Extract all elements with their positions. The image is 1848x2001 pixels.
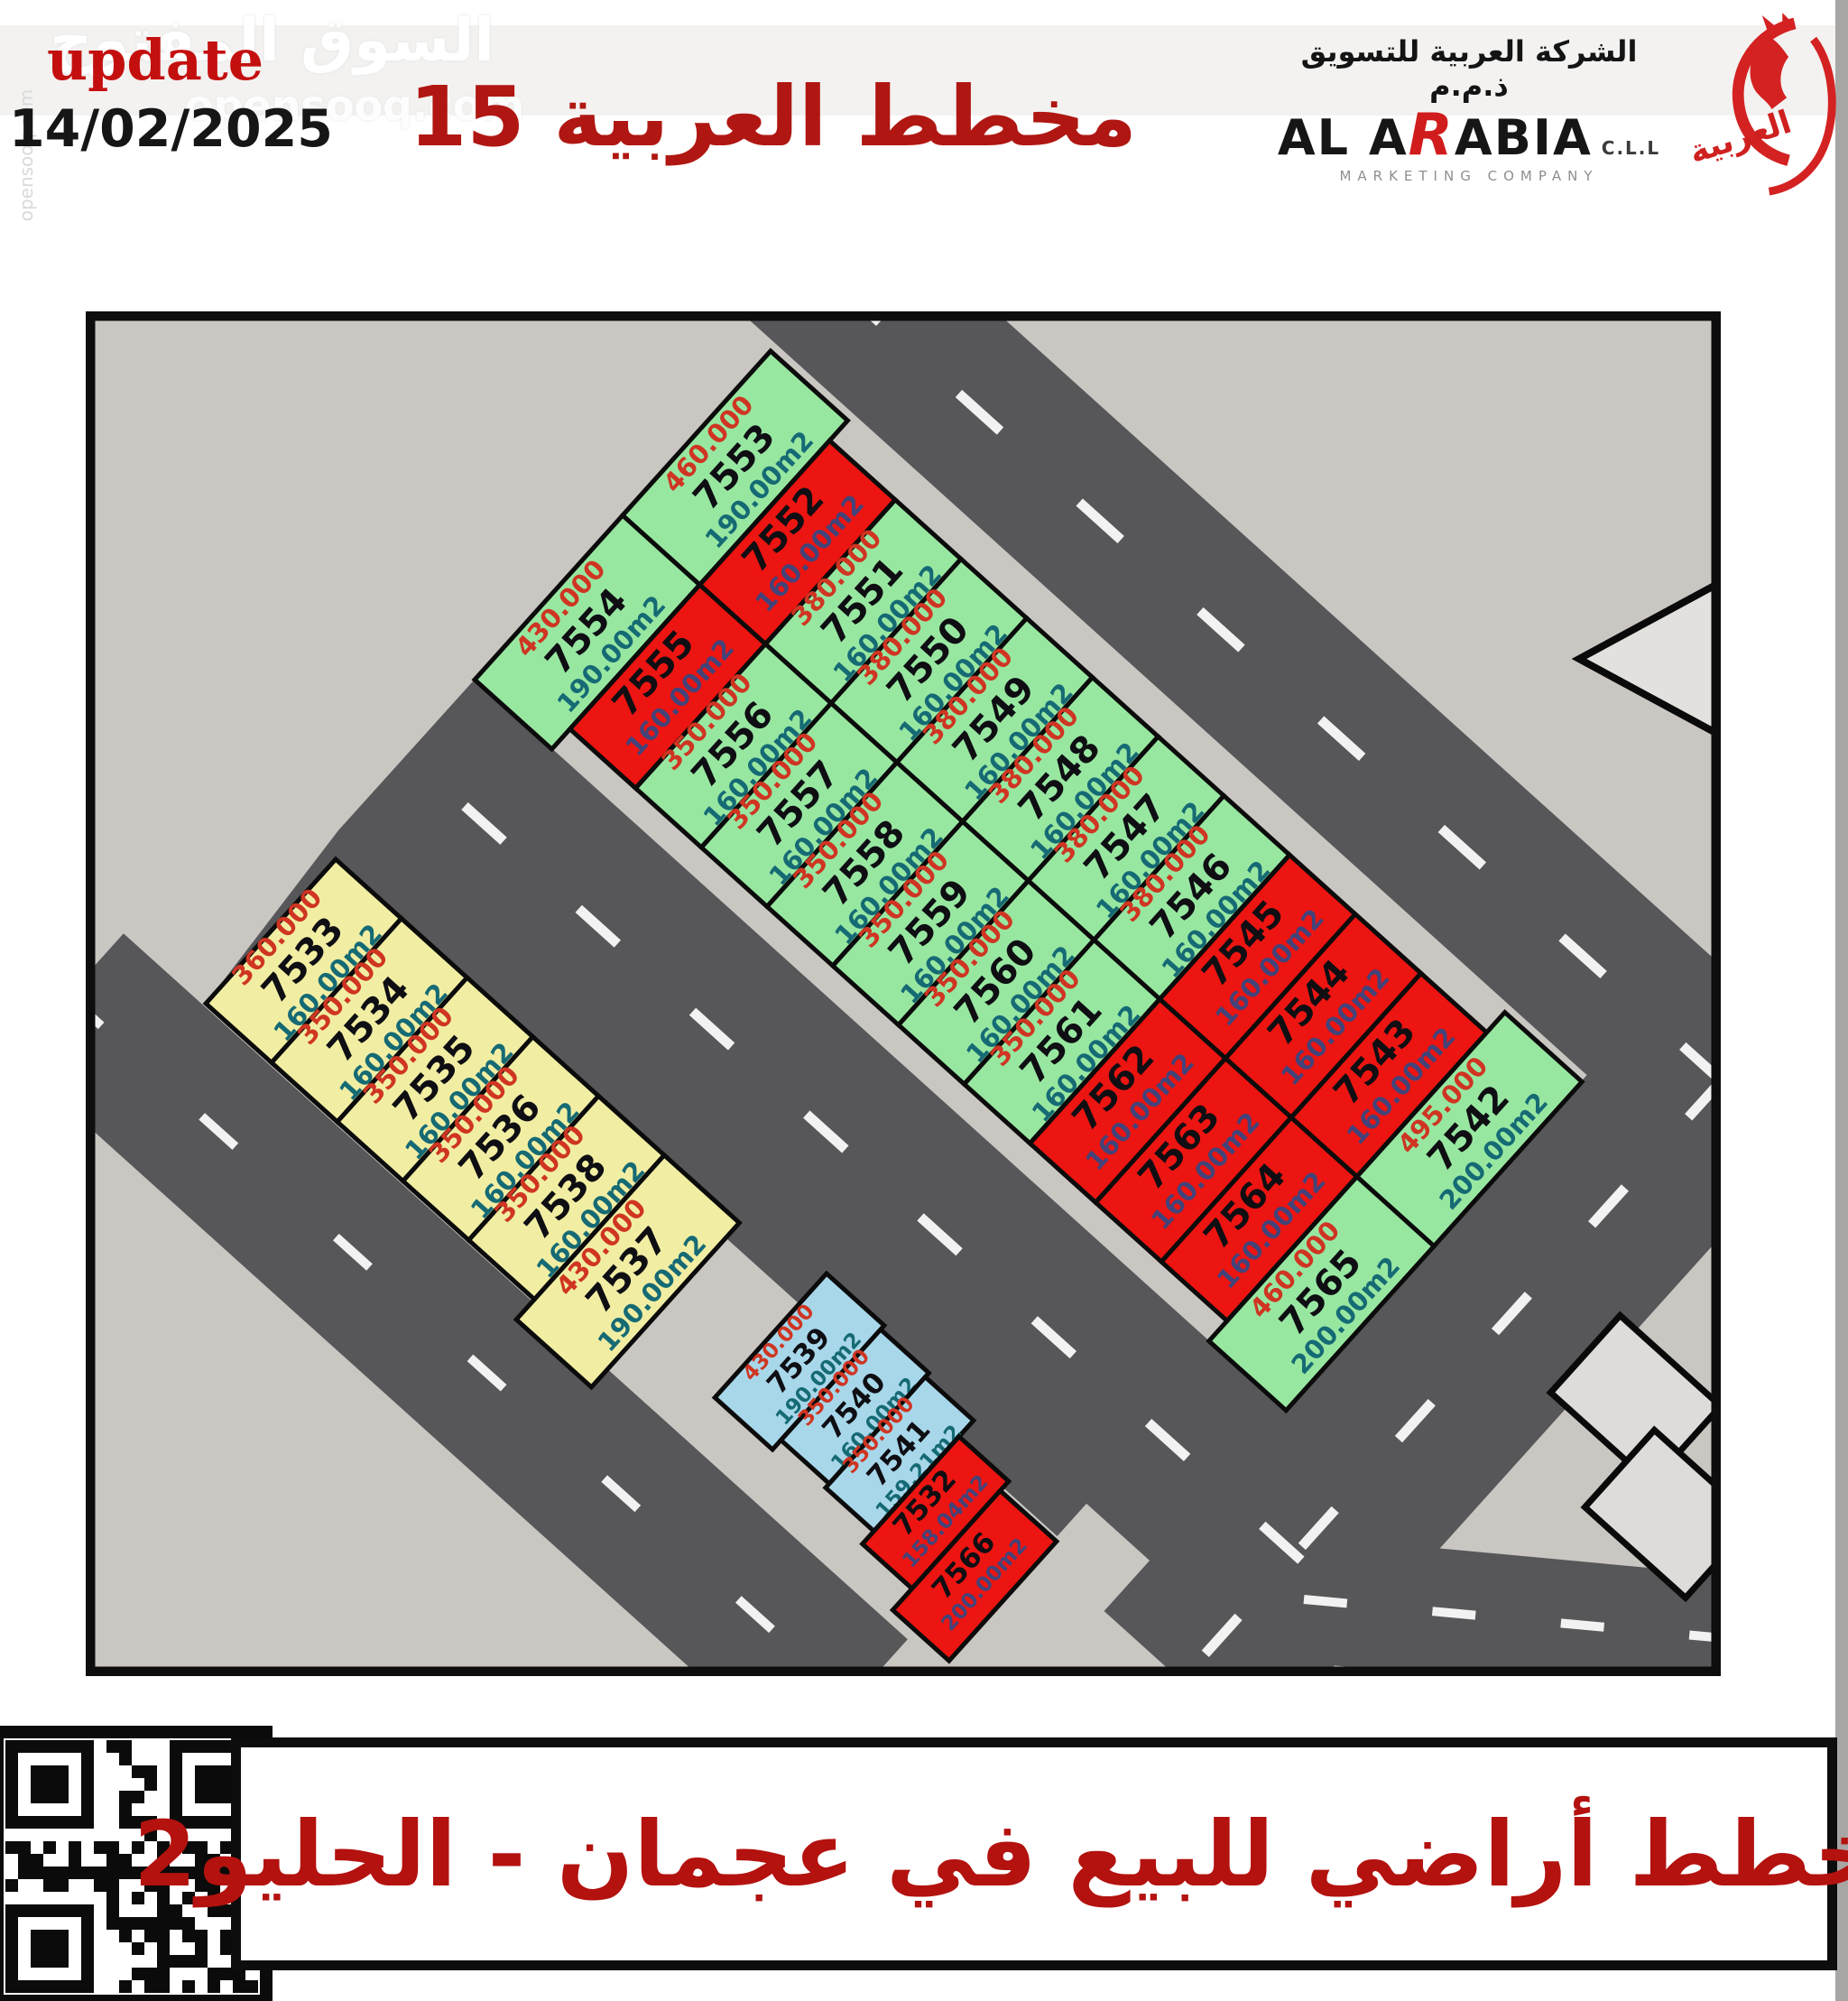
logo-tagline: MARKETING COMPANY (1270, 168, 1668, 184)
footer-banner: مخطط أراضي للبيع في عجمان - الحليو2 (231, 1737, 1837, 1970)
update-date: 14/02/2025 (9, 99, 333, 159)
horse-emblem-icon: العربية (1662, 11, 1839, 202)
footer-caption: مخطط أراضي للبيع في عجمان - الحليو2 (134, 1802, 1848, 1907)
logo-brand-pre: AL A (1278, 109, 1409, 166)
logo-brand-suffix: C.L.L (1602, 137, 1660, 159)
road-bottom-right (1286, 1598, 1721, 1638)
company-logo: الشركة العربية للتسويق ذ.م.م AL ARABIAC.… (1270, 34, 1668, 184)
flyer-page: السوق المفتوح opensooq.com opensooq.com … (0, 0, 1848, 2001)
logo-arabic-name: الشركة العربية للتسويق ذ.م.م (1270, 34, 1668, 103)
logo-latin-name: AL ARABIAC.L.L (1270, 107, 1668, 164)
right-edge-strip (1835, 0, 1848, 2001)
page-title: مخطط العربية 15 (451, 69, 1137, 165)
plots-map: 460.0007553190.00m27552160.00m2380.00075… (86, 311, 1721, 1676)
logo-brand-r: R (1409, 102, 1455, 169)
update-label: update (47, 27, 263, 93)
logo-brand-post: ABIA (1455, 109, 1593, 166)
